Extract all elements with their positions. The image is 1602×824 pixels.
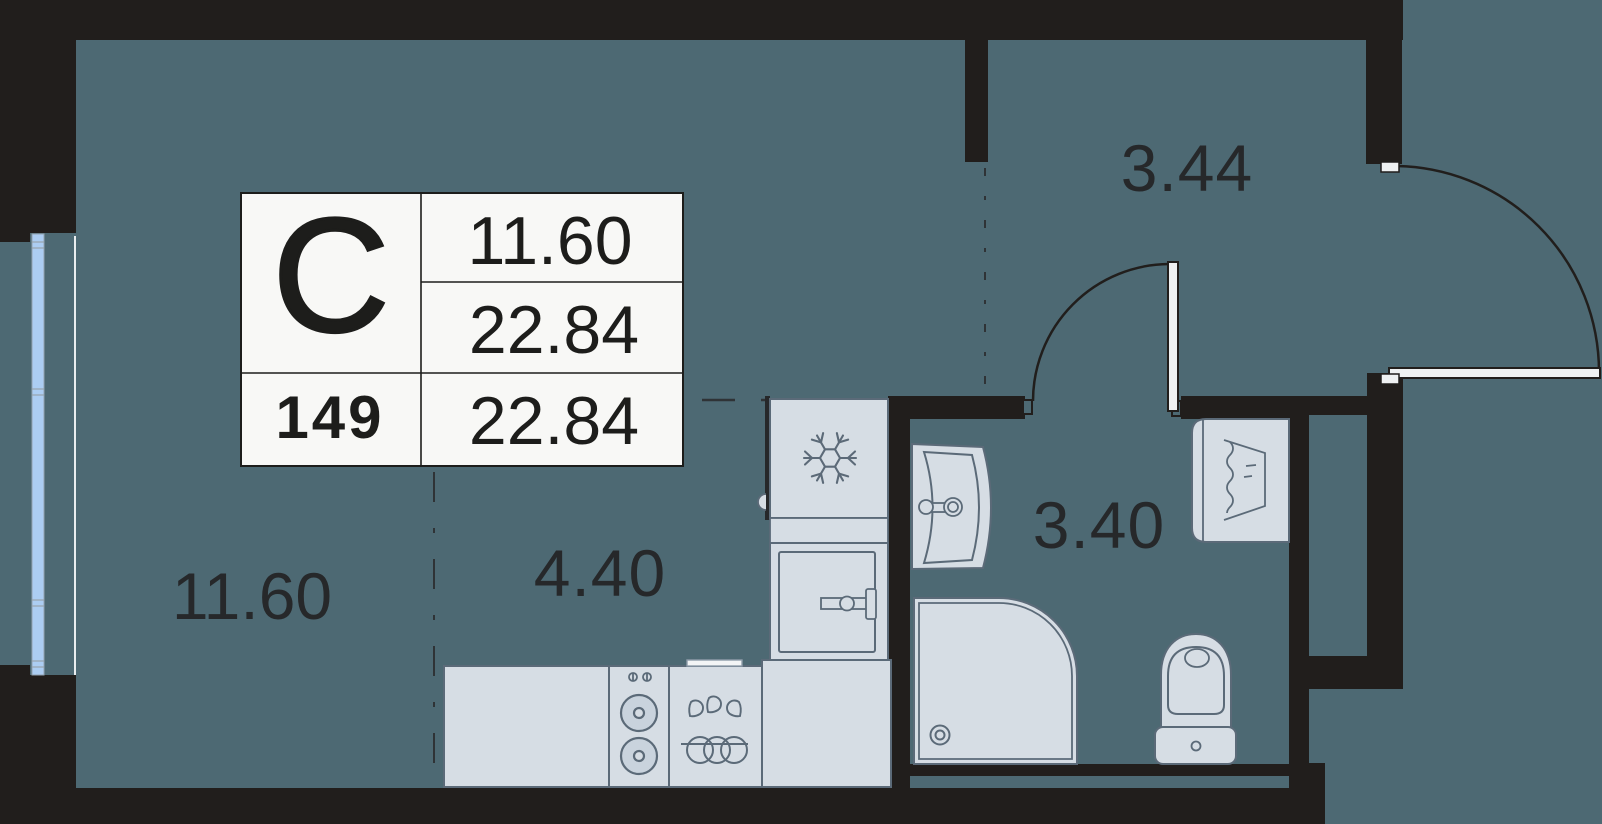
- svg-text:11.60: 11.60: [172, 559, 332, 633]
- svg-text:149: 149: [275, 384, 384, 451]
- svg-text:С: С: [273, 185, 390, 366]
- svg-text:3.40: 3.40: [1033, 488, 1165, 562]
- svg-text:4.40: 4.40: [534, 536, 666, 610]
- svg-text:22.84: 22.84: [469, 383, 639, 459]
- svg-text:22.84: 22.84: [469, 292, 639, 368]
- svg-text:3.44: 3.44: [1121, 131, 1253, 205]
- svg-text:11.60: 11.60: [467, 203, 632, 279]
